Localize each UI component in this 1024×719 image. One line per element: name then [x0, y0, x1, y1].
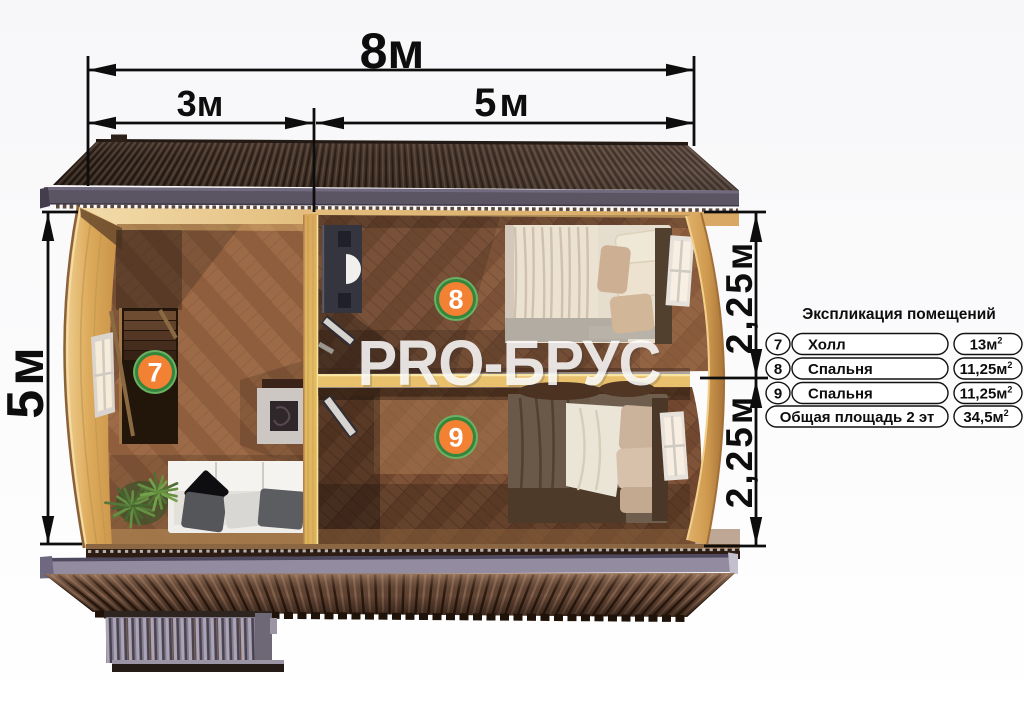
svg-text:7: 7 [147, 358, 162, 388]
svg-text:8м: 8м [360, 23, 425, 79]
svg-text:Экспликация помещений: Экспликация помещений [802, 306, 996, 323]
svg-text:Общая площадь 2 эт: Общая площадь 2 эт [780, 409, 935, 426]
svg-text:8: 8 [448, 285, 463, 315]
svg-text:7: 7 [774, 337, 782, 354]
svg-text:9: 9 [774, 386, 782, 403]
svg-text:Спальня: Спальня [808, 361, 873, 378]
svg-text:11,25м2: 11,25м2 [960, 385, 1013, 403]
svg-text:5м: 5м [474, 81, 532, 125]
svg-text:Спальня: Спальня [808, 386, 873, 403]
svg-text:5м: 5м [0, 343, 55, 418]
svg-text:11,25м2: 11,25м2 [960, 360, 1013, 378]
svg-text:8: 8 [774, 361, 782, 378]
svg-text:9: 9 [448, 423, 463, 453]
svg-text:2,25м: 2,25м [719, 394, 760, 508]
svg-text:PRO-БРУС: PRO-БРУС [357, 328, 660, 399]
svg-text:3м: 3м [177, 83, 224, 124]
svg-text:34,5м2: 34,5м2 [963, 408, 1008, 426]
svg-text:Холл: Холл [808, 337, 846, 354]
svg-text:2,25м: 2,25м [719, 240, 760, 354]
